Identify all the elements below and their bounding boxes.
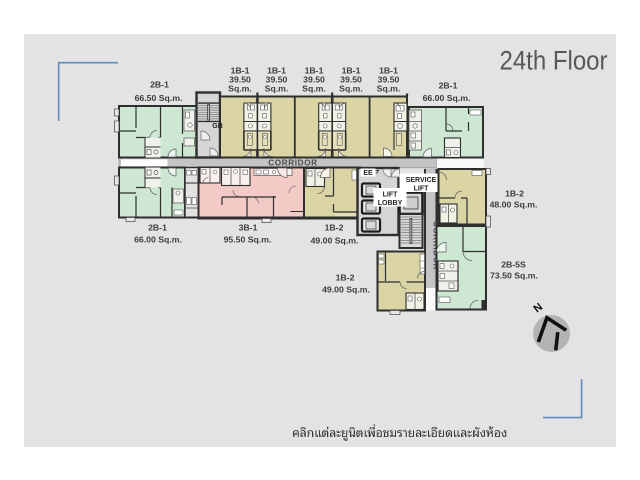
svg-text:66.00 Sq.m.: 66.00 Sq.m.	[423, 93, 471, 103]
svg-text:Sq.m.: Sq.m.	[339, 84, 363, 94]
svg-text:LIFT: LIFT	[383, 192, 398, 199]
svg-text:49.00 Sq.m.: 49.00 Sq.m.	[322, 285, 370, 295]
svg-text:48.00 Sq.m.: 48.00 Sq.m.	[490, 200, 538, 210]
svg-text:Sq.m.: Sq.m.	[228, 84, 252, 94]
svg-text:2B-1: 2B-1	[150, 80, 169, 90]
svg-text:66.00 Sq.m.: 66.00 Sq.m.	[134, 235, 182, 245]
svg-text:CORRIDOR: CORRIDOR	[268, 159, 317, 168]
svg-text:Sq.m.: Sq.m.	[377, 84, 401, 94]
svg-text:SERVICE: SERVICE	[406, 177, 437, 184]
svg-text:66.50 Sq.m.: 66.50 Sq.m.	[135, 93, 183, 103]
svg-text:2B-1: 2B-1	[439, 80, 458, 90]
svg-text:GB: GB	[212, 123, 223, 130]
svg-text:1B-2: 1B-2	[505, 189, 524, 199]
svg-text:Sq.m.: Sq.m.	[265, 84, 289, 94]
svg-text:24th Floor: 24th Floor	[500, 45, 608, 75]
svg-text:3B-1: 3B-1	[239, 223, 258, 233]
svg-text:73.50 Sq.m.: 73.50 Sq.m.	[490, 271, 538, 281]
svg-text:LIFT: LIFT	[414, 186, 429, 193]
svg-text:2B-1: 2B-1	[148, 223, 167, 233]
svg-text:1B-2: 1B-2	[336, 273, 355, 283]
svg-text:49.00 Sq.m.: 49.00 Sq.m.	[311, 236, 359, 246]
svg-text:Sq.m.: Sq.m.	[302, 84, 326, 94]
svg-text:EE: EE	[363, 170, 373, 177]
svg-text:1B-2: 1B-2	[325, 223, 344, 233]
svg-text:LOBBY: LOBBY	[378, 200, 403, 207]
svg-text:2B-5S: 2B-5S	[501, 260, 526, 270]
svg-text:95.50 Sq.m.: 95.50 Sq.m.	[224, 235, 272, 245]
